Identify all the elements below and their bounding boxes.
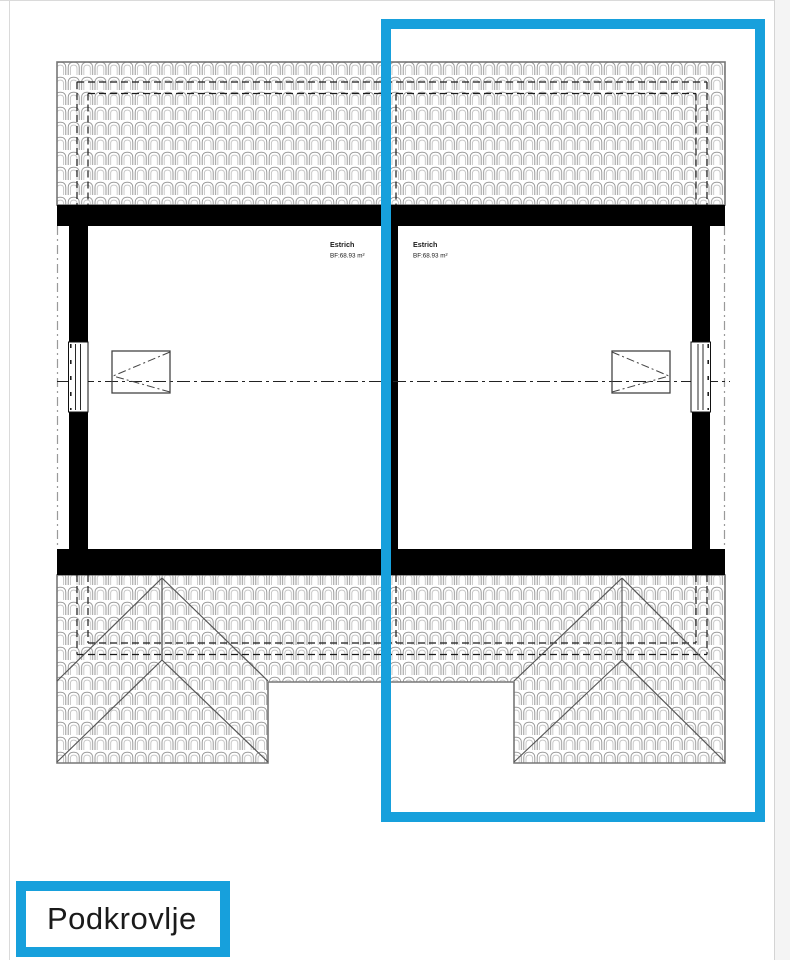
wall-left-lower: [69, 412, 88, 549]
skylight-symbol-left: [112, 351, 170, 393]
window-left: [69, 342, 89, 412]
floor-label-text: Podkrovlje: [26, 901, 197, 937]
unit-highlight-rectangle[interactable]: [381, 19, 765, 822]
room-area-left: BF:68.93 m²: [330, 253, 365, 260]
floor-label-box[interactable]: Podkrovlje: [16, 881, 230, 957]
room-name-left: Estrich: [330, 240, 354, 249]
wall-left-upper: [69, 225, 88, 342]
